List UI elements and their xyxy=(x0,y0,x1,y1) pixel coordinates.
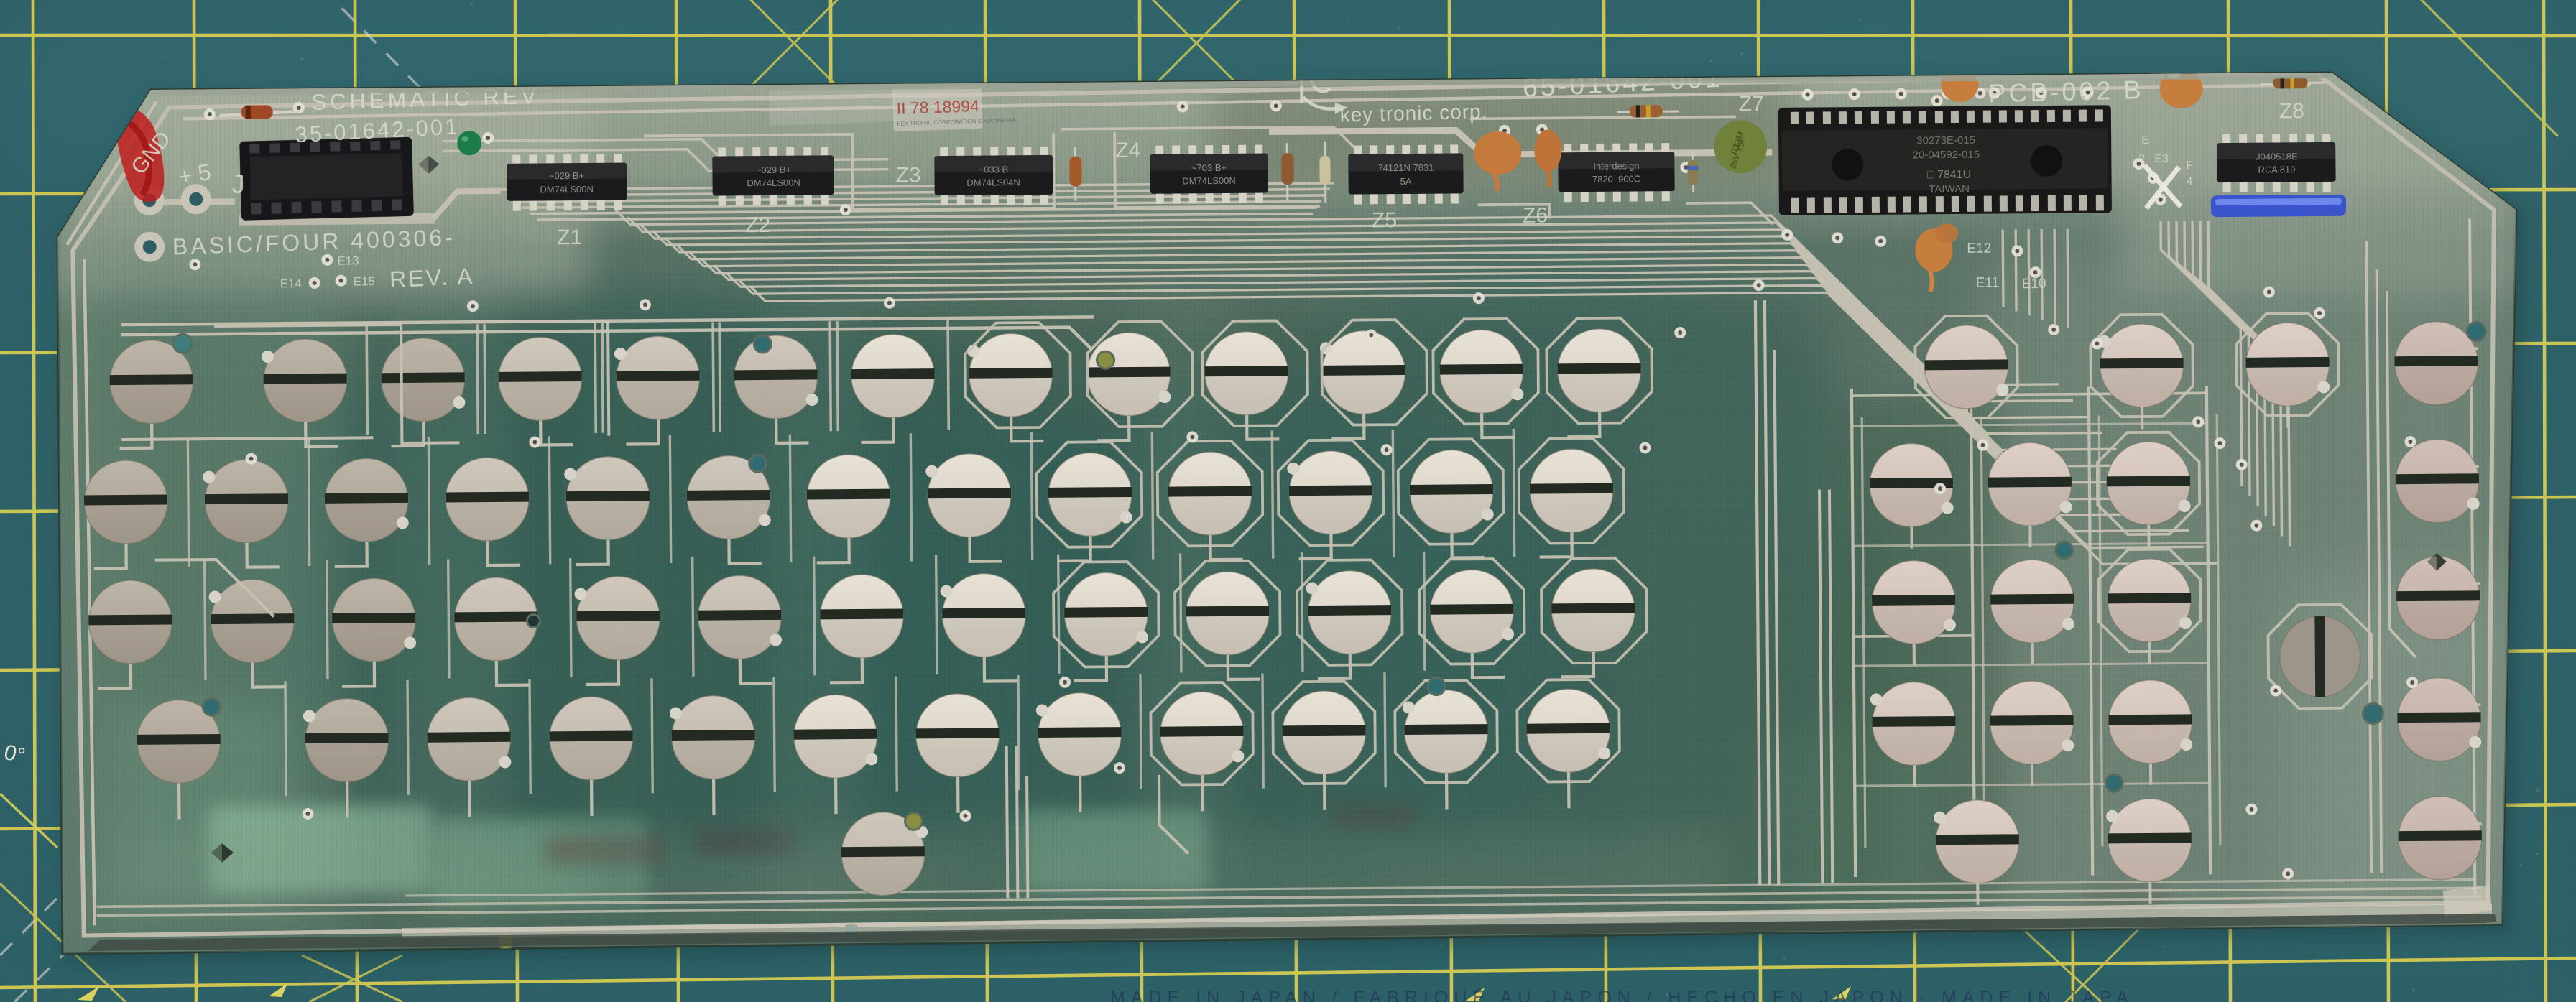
svg-text:E15: E15 xyxy=(354,274,375,288)
svg-text:J: J xyxy=(231,170,244,199)
svg-text:E11: E11 xyxy=(1976,276,2000,291)
svg-text:~033 B: ~033 B xyxy=(979,164,1009,175)
svg-text:74121N 7831: 74121N 7831 xyxy=(1377,162,1434,174)
svg-text:RCA 819: RCA 819 xyxy=(2258,164,2295,175)
svg-text:5A: 5A xyxy=(1400,176,1412,187)
svg-text:~029 B+: ~029 B+ xyxy=(756,164,791,175)
svg-text:4: 4 xyxy=(2187,175,2193,187)
svg-text:E13: E13 xyxy=(337,254,359,267)
svg-text:J040518E: J040518E xyxy=(2256,151,2298,162)
svg-text:REV. A: REV. A xyxy=(389,263,475,292)
svg-text:~029 B+: ~029 B+ xyxy=(549,170,584,181)
svg-text:E3: E3 xyxy=(2154,153,2169,165)
svg-text:Z1: Z1 xyxy=(557,226,582,249)
svg-text:DM74LS00N: DM74LS00N xyxy=(747,177,800,189)
svg-text:E: E xyxy=(2141,134,2149,147)
svg-text:7820 900C: 7820 900C xyxy=(1592,173,1640,185)
svg-text:Z4: Z4 xyxy=(1115,139,1140,162)
svg-text:E14: E14 xyxy=(280,277,302,290)
svg-text:2: 2 xyxy=(2138,153,2145,165)
svg-text:DM74LS00N: DM74LS00N xyxy=(1182,175,1236,187)
svg-text:F: F xyxy=(2186,159,2193,172)
svg-text:Z6: Z6 xyxy=(1523,203,1548,227)
svg-text:TAIWAN: TAIWAN xyxy=(1929,183,1970,195)
svg-text:Z3: Z3 xyxy=(895,163,920,187)
svg-text:20-04592-015: 20-04592-015 xyxy=(1913,149,1980,162)
svg-text:Z8: Z8 xyxy=(2279,99,2304,123)
svg-text:MADE IN JAPAN / FABRIQUÉ AU J: MADE IN JAPAN / FABRIQUÉ AU JAPON / HECH… xyxy=(1110,987,2134,1002)
svg-text:Z2: Z2 xyxy=(745,213,770,237)
svg-text:E10: E10 xyxy=(2022,277,2046,292)
svg-text:Z5: Z5 xyxy=(1372,208,1397,232)
svg-text:key tronic corp.: key tronic corp. xyxy=(1339,100,1488,126)
svg-text:Interdesign: Interdesign xyxy=(1593,160,1639,172)
svg-text:□ 7841U: □ 7841U xyxy=(1927,169,1971,181)
svg-text:II 78 18994: II 78 18994 xyxy=(896,96,979,118)
svg-text:Z7: Z7 xyxy=(1739,92,1764,116)
svg-text:30273E-015: 30273E-015 xyxy=(1916,134,1975,147)
svg-text:E12: E12 xyxy=(1967,241,1991,256)
svg-text:DM74LS04N: DM74LS04N xyxy=(966,177,1020,188)
svg-text:DM74LS00N: DM74LS00N xyxy=(540,184,594,195)
svg-text:~703 B+: ~703 B+ xyxy=(1191,162,1227,173)
